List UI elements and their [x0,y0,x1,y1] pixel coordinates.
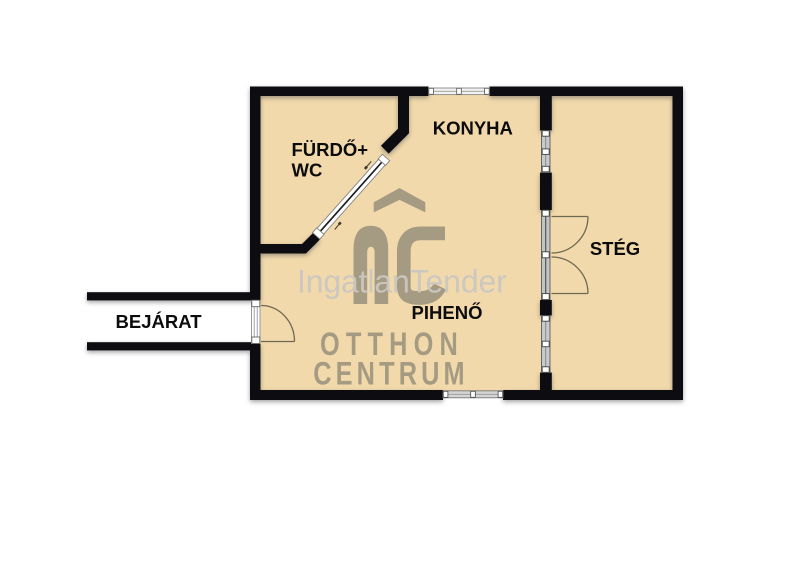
svg-text:STÉG: STÉG [590,238,640,259]
svg-text:IngatlanTender: IngatlanTender [297,264,507,300]
svg-text:FÜRDŐ+: FÜRDŐ+ [292,139,369,160]
svg-text:WC: WC [292,160,323,181]
svg-text:BEJÁRAT: BEJÁRAT [116,311,203,332]
svg-text:KONYHA: KONYHA [433,118,513,139]
svg-text:PIHENŐ: PIHENŐ [412,302,483,323]
svg-text:CENTRUM: CENTRUM [313,357,469,393]
